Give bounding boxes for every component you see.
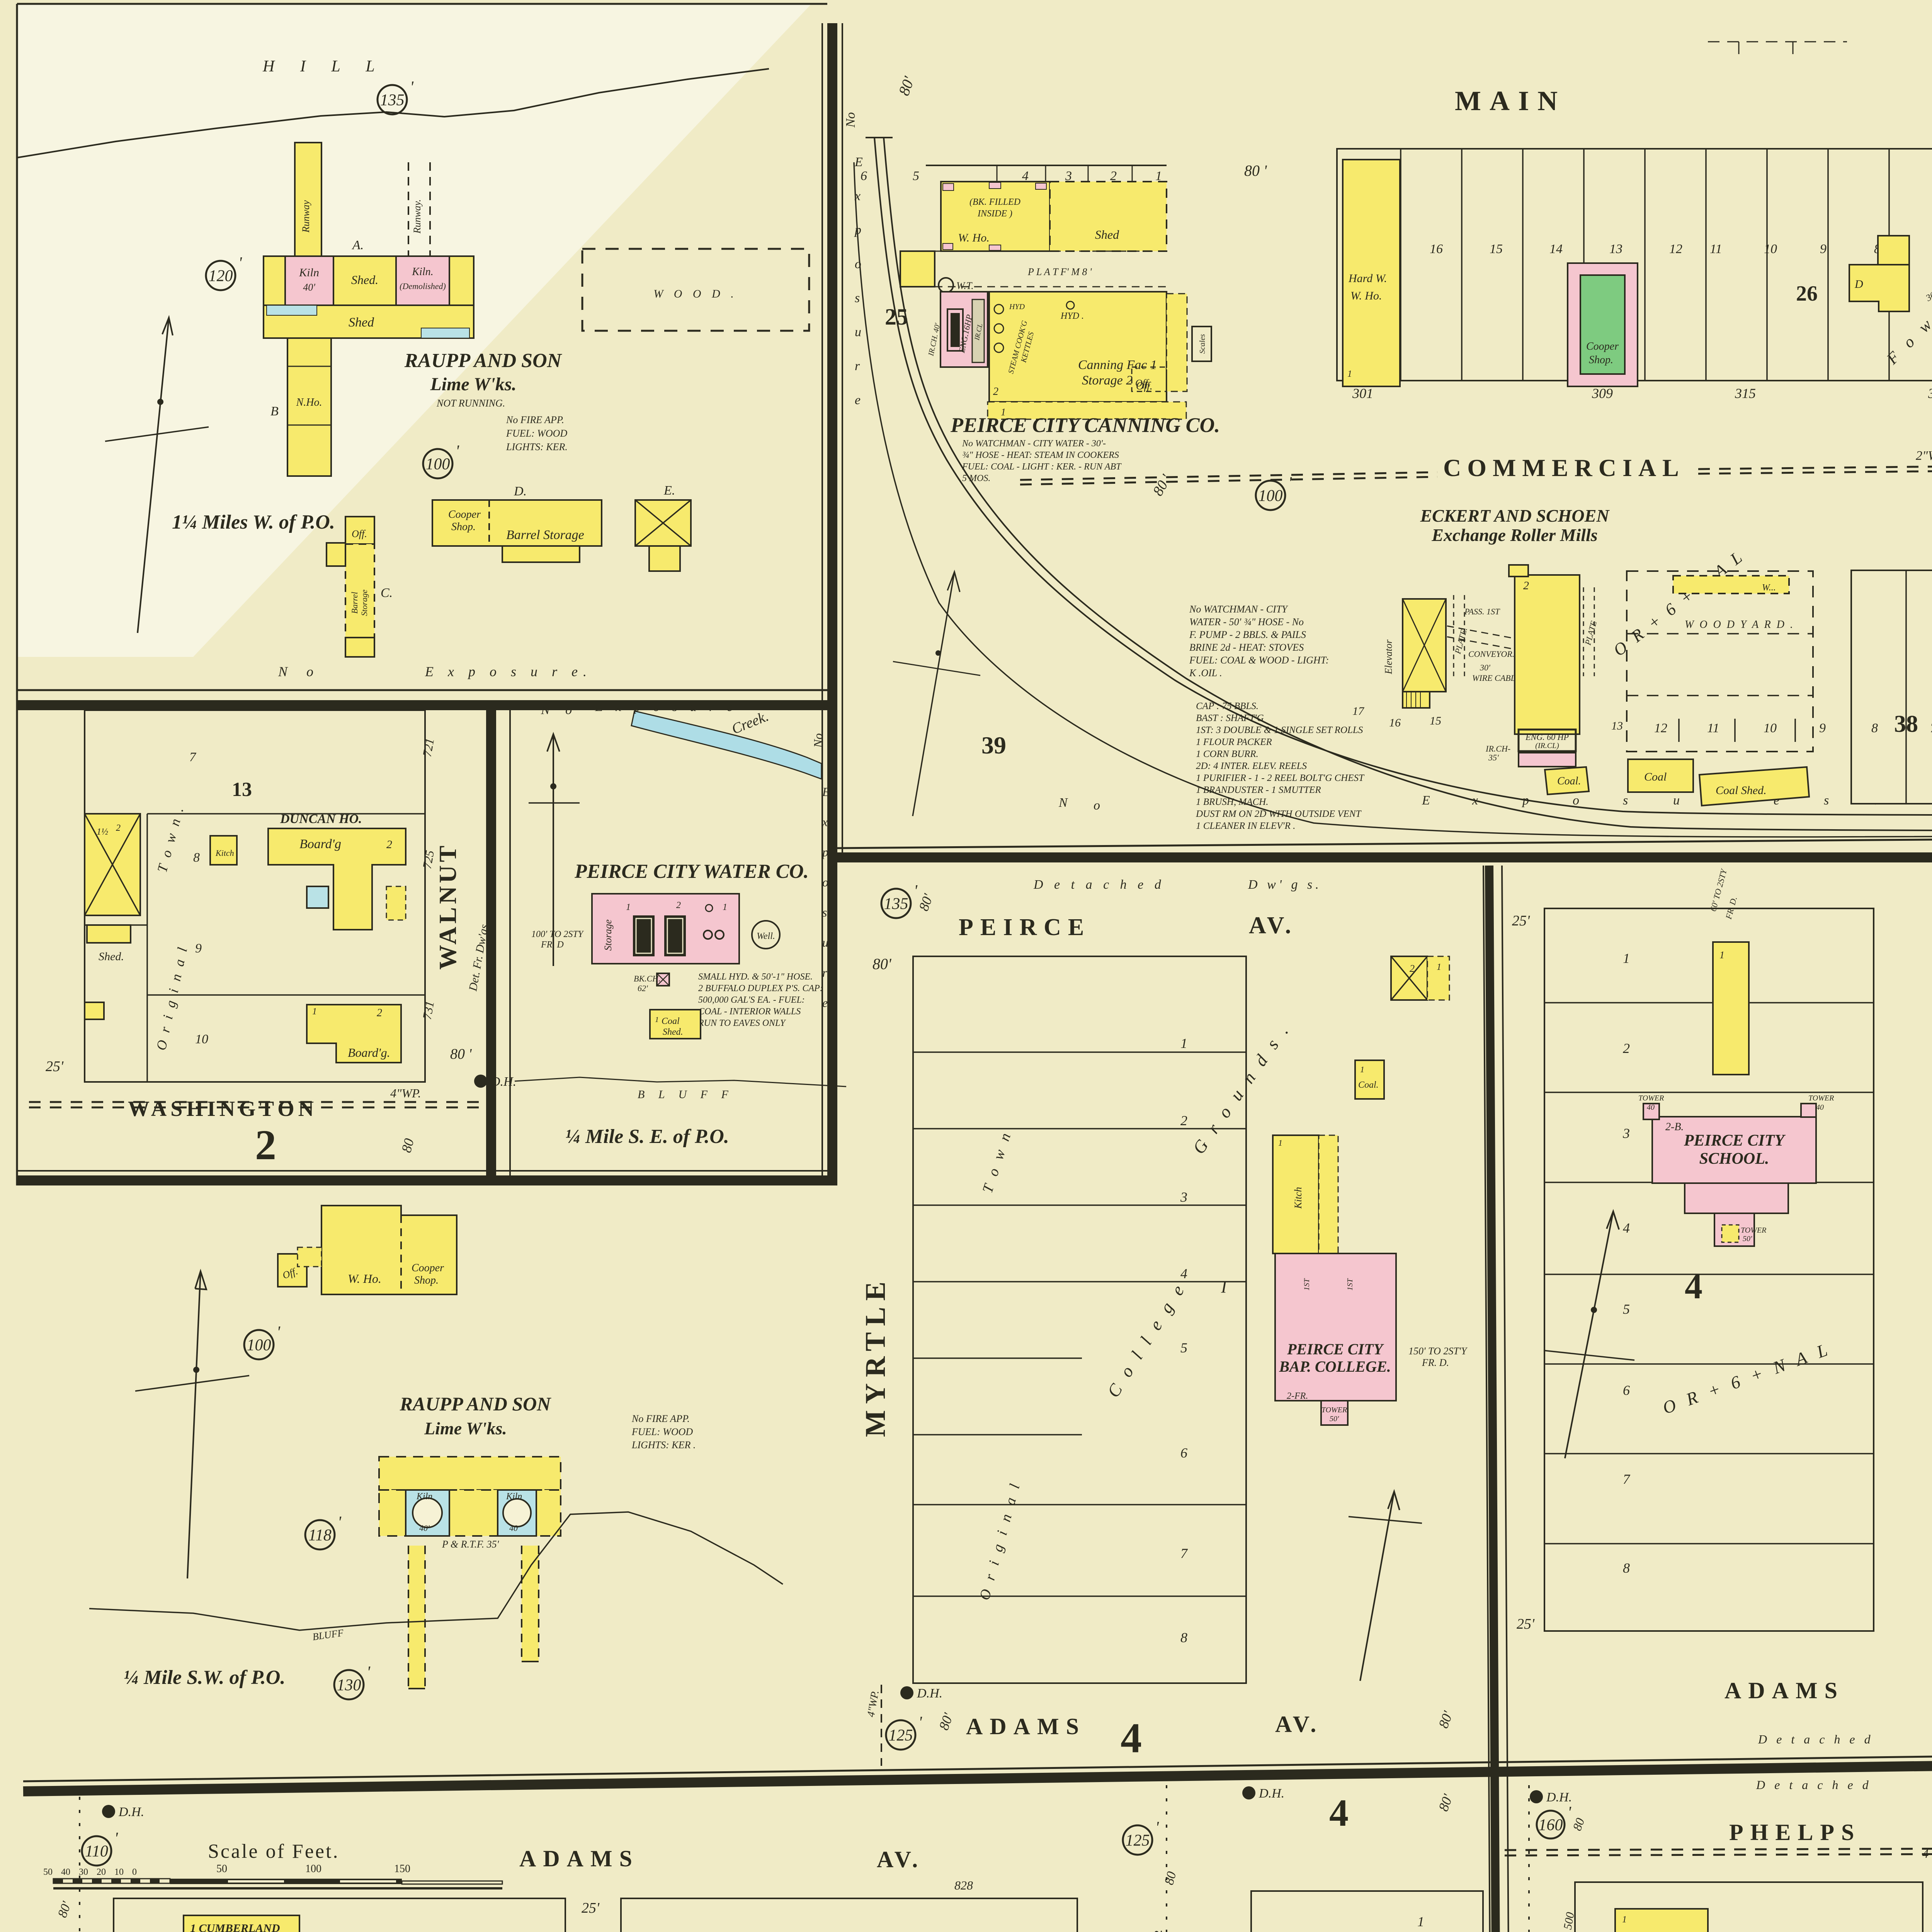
svg-text:D.H.: D.H. bbox=[917, 1686, 942, 1701]
svg-text:C.: C. bbox=[381, 586, 393, 600]
svg-text:2: 2 bbox=[386, 838, 392, 851]
svg-text:4: 4 bbox=[1180, 1266, 1187, 1281]
svg-text:HYD: HYD bbox=[1009, 303, 1025, 311]
svg-text:120: 120 bbox=[209, 267, 233, 285]
svg-text:5: 5 bbox=[1180, 1340, 1187, 1355]
svg-text:W.T.: W.T. bbox=[956, 280, 974, 291]
svg-text:Off.: Off. bbox=[352, 528, 367, 539]
svg-text:50: 50 bbox=[43, 1867, 53, 1877]
svg-text:2-B.: 2-B. bbox=[1665, 1121, 1684, 1133]
svg-text:1½: 1½ bbox=[97, 827, 108, 837]
svg-text:¼ Mile S.W. of P.O.: ¼ Mile S.W. of P.O. bbox=[124, 1667, 285, 1689]
svg-text:309: 309 bbox=[1592, 386, 1613, 401]
svg-text:N o: N o bbox=[541, 703, 578, 717]
svg-text:BAST : SHAFT'G: BAST : SHAFT'G bbox=[1196, 713, 1264, 723]
svg-text:5 MOS.: 5 MOS. bbox=[962, 473, 990, 483]
svg-text:p: p bbox=[821, 845, 828, 859]
svg-text:0: 0 bbox=[132, 1867, 137, 1877]
svg-text:': ' bbox=[410, 78, 414, 96]
svg-text:Cooper: Cooper bbox=[1586, 340, 1619, 352]
svg-text:D.H.: D.H. bbox=[118, 1805, 144, 1819]
svg-text:FR. D: FR. D bbox=[541, 940, 564, 950]
svg-text:¼ Mile S. E. of P.O.: ¼ Mile S. E. of P.O. bbox=[565, 1126, 729, 1148]
svg-text:7: 7 bbox=[1930, 721, 1932, 735]
svg-text:ADAMS: ADAMS bbox=[966, 1714, 1086, 1739]
svg-text:Coal.: Coal. bbox=[1557, 775, 1581, 787]
svg-text:TOWER: TOWER bbox=[1808, 1094, 1834, 1102]
svg-text:E x p o s u r e: E x p o s u r e bbox=[595, 700, 737, 714]
svg-text:1: 1 bbox=[1278, 1138, 1282, 1148]
svg-text:Kiln: Kiln bbox=[416, 1492, 432, 1502]
svg-text:E x p o s u r e.: E x p o s u r e. bbox=[425, 664, 592, 679]
svg-text:Exchange Roller Mills: Exchange Roller Mills bbox=[1431, 525, 1597, 545]
svg-text:E.: E. bbox=[663, 483, 675, 498]
svg-text:E: E bbox=[854, 155, 863, 169]
svg-text:Shed.: Shed. bbox=[99, 950, 124, 963]
svg-text:25': 25' bbox=[582, 1900, 600, 1916]
svg-text:FUEL: COAL & WOOD - LIGHT:: FUEL: COAL & WOOD - LIGHT: bbox=[1189, 655, 1329, 666]
svg-text:W...: W... bbox=[1762, 583, 1776, 593]
svg-text:80': 80' bbox=[872, 955, 892, 973]
svg-text:50': 50' bbox=[1330, 1415, 1339, 1423]
svg-text:Cooper: Cooper bbox=[412, 1262, 444, 1274]
svg-text:RAUPP AND SON: RAUPP AND SON bbox=[404, 350, 563, 372]
svg-text:6: 6 bbox=[861, 169, 867, 183]
svg-text:5: 5 bbox=[913, 169, 919, 183]
svg-text:10: 10 bbox=[1764, 721, 1777, 735]
svg-text:FR. D.: FR. D. bbox=[1422, 1357, 1449, 1368]
svg-text:COMMERCIAL: COMMERCIAL bbox=[1443, 454, 1685, 481]
svg-text:PEIRCE CITY: PEIRCE CITY bbox=[1684, 1132, 1786, 1150]
svg-text:': ' bbox=[238, 254, 242, 272]
svg-text:10: 10 bbox=[195, 1032, 208, 1046]
svg-text:W. Ho.: W. Ho. bbox=[1350, 289, 1382, 302]
svg-text:4: 4 bbox=[1329, 1791, 1349, 1834]
svg-text:8: 8 bbox=[1623, 1560, 1630, 1576]
svg-text:40: 40 bbox=[61, 1867, 70, 1877]
svg-text:CONVEYOR.: CONVEYOR. bbox=[1468, 649, 1514, 659]
svg-text:': ' bbox=[914, 882, 918, 900]
svg-text:Coal: Coal bbox=[1644, 770, 1667, 783]
svg-text:BK.CH.: BK.CH. bbox=[634, 974, 661, 983]
svg-text:4: 4 bbox=[1623, 1220, 1630, 1236]
svg-text:FUEL: COAL - LIGHT : KER. - RU: FUEL: COAL - LIGHT : KER. - RUN ABT bbox=[962, 462, 1122, 472]
svg-text:ECKERT AND SCHOEN: ECKERT AND SCHOEN bbox=[1420, 506, 1610, 526]
svg-text:WATER - 50' ¾" HOSE - No: WATER - 50' ¾" HOSE - No bbox=[1189, 616, 1304, 628]
svg-text:4: 4 bbox=[1685, 1267, 1702, 1306]
svg-text:E: E bbox=[822, 785, 830, 799]
svg-text:26: 26 bbox=[1796, 282, 1818, 306]
svg-text:100: 100 bbox=[247, 1337, 271, 1354]
svg-text:11: 11 bbox=[1707, 721, 1719, 735]
svg-text:5: 5 bbox=[1623, 1301, 1630, 1317]
svg-text:K .OIL .: K .OIL . bbox=[1189, 667, 1222, 679]
svg-text:62': 62' bbox=[638, 983, 648, 993]
svg-text:WIRE CABLE: WIRE CABLE bbox=[1472, 673, 1521, 683]
svg-text:H I L L: H I L L bbox=[262, 58, 386, 75]
svg-text:2: 2 bbox=[676, 900, 681, 910]
svg-text:50': 50' bbox=[1743, 1235, 1752, 1243]
svg-text:Canning Fac 1: Canning Fac 1 bbox=[1078, 358, 1157, 372]
svg-text:Storage: Storage bbox=[359, 590, 369, 616]
svg-text:ENG. 60 HP: ENG. 60 HP bbox=[1525, 732, 1569, 742]
svg-text:2-FR.: 2-FR. bbox=[1287, 1391, 1308, 1401]
svg-text:s: s bbox=[822, 905, 827, 919]
svg-text:.: . bbox=[1874, 793, 1878, 808]
svg-text:': ' bbox=[1155, 1819, 1159, 1837]
svg-text:P L A T F' M 8 ': P L A T F' M 8 ' bbox=[1027, 266, 1092, 277]
svg-text:100: 100 bbox=[1259, 487, 1283, 505]
svg-text:Shop.: Shop. bbox=[1589, 354, 1613, 366]
svg-text:9: 9 bbox=[1820, 242, 1827, 256]
svg-text:10: 10 bbox=[114, 1867, 124, 1877]
svg-text:(Demolished): (Demolished) bbox=[400, 281, 446, 291]
svg-text:160: 160 bbox=[1539, 1816, 1563, 1834]
svg-text:BRINE 2d - HEAT: STOVES: BRINE 2d - HEAT: STOVES bbox=[1189, 642, 1304, 653]
svg-text:2: 2 bbox=[255, 1121, 276, 1168]
svg-text:x: x bbox=[854, 189, 861, 203]
svg-text:No FIRE APP.: No FIRE APP. bbox=[631, 1413, 690, 1424]
svg-text:Kiln: Kiln bbox=[299, 266, 319, 279]
svg-text:TOWER: TOWER bbox=[1638, 1094, 1664, 1102]
svg-text:PEIRCE CITY CANNING CO.: PEIRCE CITY CANNING CO. bbox=[950, 413, 1220, 437]
svg-text:1: 1 bbox=[1622, 1915, 1627, 1925]
svg-text:Lime W'ks.: Lime W'ks. bbox=[430, 374, 516, 395]
svg-text:ADAMS: ADAMS bbox=[1725, 1678, 1844, 1703]
svg-text:No WATCHMAN - CITY: No WATCHMAN - CITY bbox=[1189, 604, 1288, 615]
svg-text:p: p bbox=[1522, 793, 1529, 808]
svg-text:2: 2 bbox=[116, 823, 121, 833]
svg-text:1 PURIFIER - 1 - 2 REEL BOLT'G: 1 PURIFIER - 1 - 2 REEL BOLT'G CHEST bbox=[1196, 773, 1365, 783]
svg-text:8: 8 bbox=[193, 850, 200, 865]
svg-text:': ' bbox=[1288, 474, 1292, 492]
svg-text:50: 50 bbox=[216, 1863, 227, 1875]
svg-text:2: 2 bbox=[1180, 1113, 1187, 1128]
svg-text:': ' bbox=[367, 1663, 371, 1681]
svg-text:Shed.: Shed. bbox=[351, 273, 378, 287]
svg-text:': ' bbox=[277, 1323, 281, 1341]
svg-text:s: s bbox=[1824, 793, 1829, 808]
svg-text:13: 13 bbox=[1609, 242, 1622, 256]
svg-text:1¼ Miles W. of P.O.: 1¼ Miles W. of P.O. bbox=[172, 511, 335, 533]
svg-text:RUN TO EAVES ONLY: RUN TO EAVES ONLY bbox=[698, 1018, 786, 1028]
svg-text:9: 9 bbox=[1819, 721, 1826, 735]
svg-text:Hard W.: Hard W. bbox=[1348, 272, 1387, 285]
svg-text:1: 1 bbox=[1719, 949, 1725, 961]
svg-text:r: r bbox=[855, 359, 860, 373]
svg-text:p: p bbox=[854, 223, 861, 237]
svg-text:1 BRUSH, MACH.: 1 BRUSH, MACH. bbox=[1196, 797, 1268, 807]
svg-text:1: 1 bbox=[1623, 951, 1630, 966]
svg-text:N: N bbox=[1058, 796, 1068, 810]
svg-text:D w' g s.: D w' g s. bbox=[1248, 878, 1322, 892]
svg-text:No WATCHMAN - CITY WATER - 30': No WATCHMAN - CITY WATER - 30'- bbox=[962, 439, 1106, 449]
svg-text:1 BRANDUSTER - 1 SMUTTER: 1 BRANDUSTER - 1 SMUTTER bbox=[1196, 785, 1321, 795]
svg-text:12: 12 bbox=[1669, 242, 1682, 256]
svg-text:500,000 GAL'S EA. - FUEL:: 500,000 GAL'S EA. - FUEL: bbox=[698, 995, 805, 1005]
svg-text:100: 100 bbox=[305, 1863, 321, 1875]
svg-text:110: 110 bbox=[85, 1843, 108, 1861]
svg-text:828: 828 bbox=[954, 1878, 973, 1892]
svg-text:CAP : 75 BBLS.: CAP : 75 BBLS. bbox=[1196, 701, 1259, 711]
svg-text:Shed.: Shed. bbox=[663, 1027, 683, 1037]
svg-text:39: 39 bbox=[981, 731, 1006, 759]
svg-text:25': 25' bbox=[1517, 1616, 1535, 1632]
svg-text:1: 1 bbox=[1417, 1914, 1424, 1929]
svg-text:130: 130 bbox=[337, 1677, 361, 1694]
svg-text:100: 100 bbox=[426, 456, 450, 473]
svg-text:2"WP.: 2"WP. bbox=[1916, 449, 1932, 463]
svg-text:3: 3 bbox=[1622, 1126, 1630, 1141]
svg-text:Off.: Off. bbox=[1136, 380, 1153, 392]
svg-text:Well.: Well. bbox=[757, 931, 775, 941]
svg-text:2: 2 bbox=[1523, 579, 1529, 592]
svg-text:Kitch: Kitch bbox=[215, 848, 234, 858]
svg-text:17: 17 bbox=[1352, 705, 1365, 718]
svg-text:8: 8 bbox=[1180, 1630, 1187, 1645]
svg-text:14: 14 bbox=[1549, 242, 1563, 256]
svg-text:s: s bbox=[855, 291, 860, 305]
svg-text:o: o bbox=[855, 257, 861, 271]
svg-text:MYRTLE: MYRTLE bbox=[860, 1276, 891, 1437]
svg-text:Coal: Coal bbox=[662, 1016, 680, 1026]
svg-text:40': 40' bbox=[303, 282, 315, 293]
svg-text:15: 15 bbox=[1430, 714, 1441, 727]
svg-text:118: 118 bbox=[308, 1527, 332, 1544]
svg-text:PEIRCE CITY: PEIRCE CITY bbox=[1287, 1340, 1384, 1358]
svg-text:125: 125 bbox=[889, 1727, 913, 1745]
svg-text:40: 40 bbox=[1647, 1103, 1655, 1112]
svg-text:HYD .: HYD . bbox=[1060, 311, 1084, 321]
svg-text:40: 40 bbox=[509, 1523, 518, 1533]
svg-text:COAL - INTERIOR WALLS: COAL - INTERIOR WALLS bbox=[698, 1007, 801, 1017]
svg-text:1: 1 bbox=[1360, 1065, 1364, 1074]
svg-text:W. Ho.: W. Ho. bbox=[958, 231, 989, 244]
svg-text:LIGHTS: KER.: LIGHTS: KER. bbox=[506, 441, 568, 452]
svg-text:¾" HOSE - HEAT: STEAM IN COOKE: ¾" HOSE - HEAT: STEAM IN COOKERS bbox=[962, 450, 1119, 460]
svg-text:No: No bbox=[811, 733, 825, 748]
svg-text:80 ': 80 ' bbox=[1244, 162, 1267, 179]
svg-text:D e t a c h e d: D e t a c h e d bbox=[1758, 1732, 1874, 1746]
svg-text:1 FLOUR PACKER: 1 FLOUR PACKER bbox=[1196, 737, 1272, 747]
svg-text:SCHOOL.: SCHOOL. bbox=[1699, 1150, 1769, 1168]
svg-text:LIGHTS: KER .: LIGHTS: KER . bbox=[631, 1439, 696, 1451]
svg-text:P & R.T.F. 35': P & R.T.F. 35' bbox=[442, 1539, 499, 1550]
svg-text:1 CUMBERLAND: 1 CUMBERLAND bbox=[190, 1922, 280, 1932]
svg-text:u: u bbox=[1673, 793, 1680, 808]
svg-text:IR.CH-: IR.CH- bbox=[1485, 744, 1510, 753]
svg-text:16: 16 bbox=[1389, 716, 1401, 729]
svg-text:I: I bbox=[1221, 1277, 1228, 1296]
svg-text:D e t a c h e d: D e t a c h e d bbox=[1756, 1778, 1872, 1792]
svg-text:Shed: Shed bbox=[349, 315, 374, 330]
svg-text:2 BUFFALO DUPLEX P'S. CAP:: 2 BUFFALO DUPLEX P'S. CAP: bbox=[698, 983, 823, 993]
svg-text:150' TO 2ST'Y: 150' TO 2ST'Y bbox=[1408, 1345, 1468, 1357]
svg-text:2: 2 bbox=[377, 1007, 382, 1019]
svg-text:13: 13 bbox=[232, 779, 252, 801]
svg-text:Elevator: Elevator bbox=[1383, 639, 1394, 674]
svg-text:(IR.CL): (IR.CL) bbox=[1535, 742, 1559, 750]
svg-text:N.Ho.: N.Ho. bbox=[296, 396, 322, 408]
svg-text:u: u bbox=[822, 935, 828, 949]
svg-text:Board'g: Board'g bbox=[299, 837, 341, 851]
svg-text:o: o bbox=[822, 875, 828, 889]
svg-text:3: 3 bbox=[1180, 1189, 1187, 1205]
svg-text:319: 319 bbox=[1928, 386, 1932, 401]
svg-text:7: 7 bbox=[189, 750, 197, 764]
svg-text:A.: A. bbox=[352, 238, 364, 252]
svg-text:6: 6 bbox=[1180, 1445, 1187, 1461]
svg-text:W O O D .: W O O D . bbox=[653, 287, 738, 300]
svg-text:x: x bbox=[822, 815, 828, 829]
svg-text:100' TO 2STY: 100' TO 2STY bbox=[531, 929, 584, 939]
svg-text:30': 30' bbox=[1480, 663, 1490, 672]
svg-text:NOT RUNNING.: NOT RUNNING. bbox=[436, 398, 505, 409]
svg-text:o: o bbox=[1573, 793, 1579, 808]
svg-text:No FIRE APP.: No FIRE APP. bbox=[506, 414, 564, 425]
svg-text:25': 25' bbox=[1512, 913, 1530, 929]
svg-text:N o: N o bbox=[278, 664, 321, 679]
svg-text:12: 12 bbox=[1654, 721, 1667, 735]
svg-text:o: o bbox=[1094, 798, 1100, 813]
svg-text:B: B bbox=[270, 404, 279, 418]
svg-text:Scales: Scales bbox=[1198, 334, 1207, 354]
svg-text:D.H.: D.H. bbox=[1546, 1790, 1572, 1804]
svg-text:Runway: Runway bbox=[300, 200, 311, 233]
svg-text:2D: 4 INTER. ELEV. REELS: 2D: 4 INTER. ELEV. REELS bbox=[1196, 761, 1307, 771]
svg-text:BAP. COLLEGE.: BAP. COLLEGE. bbox=[1279, 1358, 1391, 1375]
svg-text:RAUPP AND SON: RAUPP AND SON bbox=[400, 1393, 552, 1415]
svg-text:WASHINGTON: WASHINGTON bbox=[128, 1097, 318, 1121]
svg-text:Storage: Storage bbox=[602, 920, 614, 951]
svg-text:16: 16 bbox=[1430, 242, 1443, 256]
svg-text:2: 2 bbox=[1623, 1041, 1630, 1056]
svg-text:r: r bbox=[822, 966, 827, 980]
svg-text:DUST RM ON 2D WITH OUTSIDE VEN: DUST RM ON 2D WITH OUTSIDE VENT bbox=[1196, 809, 1362, 819]
svg-text:1: 1 bbox=[1180, 1036, 1187, 1051]
svg-text:40: 40 bbox=[1816, 1103, 1824, 1112]
svg-text:': ' bbox=[1568, 1804, 1571, 1821]
svg-text:Shed: Shed bbox=[1095, 228, 1119, 241]
svg-text:25': 25' bbox=[46, 1058, 64, 1075]
svg-text:': ' bbox=[456, 442, 459, 460]
svg-text:1: 1 bbox=[655, 1015, 659, 1024]
svg-text:1 CORN BURR.: 1 CORN BURR. bbox=[1196, 749, 1259, 759]
svg-text:Scale of Feet.: Scale of Feet. bbox=[208, 1840, 339, 1862]
svg-text:4: 4 bbox=[1121, 1714, 1142, 1762]
svg-text:FUEL: WOOD: FUEL: WOOD bbox=[506, 428, 567, 439]
svg-text:No: No bbox=[844, 112, 858, 128]
svg-text:Kitch: Kitch bbox=[1293, 1187, 1304, 1209]
svg-text:x: x bbox=[1472, 793, 1478, 808]
svg-text:PEIRCE CITY WATER CO.: PEIRCE CITY WATER CO. bbox=[574, 861, 809, 883]
svg-text:F. PUMP - 2 BBLS. & PAILS: F. PUMP - 2 BBLS. & PAILS bbox=[1189, 629, 1306, 640]
svg-text:4"WP.: 4"WP. bbox=[390, 1086, 421, 1100]
svg-text:35': 35' bbox=[1488, 753, 1499, 762]
svg-text:13: 13 bbox=[1611, 719, 1623, 732]
svg-text:1: 1 bbox=[626, 902, 631, 912]
svg-text:TOWER: TOWER bbox=[1741, 1226, 1766, 1235]
svg-text:D.H.: D.H. bbox=[1259, 1786, 1284, 1801]
svg-text:SMALL HYD. & 50'-1" HOSE.: SMALL HYD. & 50'-1" HOSE. bbox=[698, 972, 813, 982]
svg-text:15: 15 bbox=[1490, 242, 1503, 256]
svg-text:9: 9 bbox=[195, 941, 202, 956]
svg-text:Barrel Storage: Barrel Storage bbox=[506, 528, 584, 542]
svg-text:301: 301 bbox=[1352, 386, 1373, 401]
svg-text:D.H.: D.H. bbox=[490, 1075, 516, 1089]
svg-text:Coal Shed.: Coal Shed. bbox=[1716, 784, 1767, 797]
svg-text:1: 1 bbox=[1437, 962, 1441, 972]
svg-text:7: 7 bbox=[1180, 1546, 1188, 1561]
svg-text:B L U F F: B L U F F bbox=[638, 1088, 734, 1101]
svg-text:Storage 2: Storage 2 bbox=[1082, 373, 1133, 388]
svg-text:Kiln: Kiln bbox=[506, 1492, 522, 1502]
svg-text:E: E bbox=[1422, 793, 1430, 808]
svg-text:': ' bbox=[338, 1514, 342, 1531]
svg-text:135: 135 bbox=[380, 92, 405, 109]
svg-text:8: 8 bbox=[1871, 721, 1878, 735]
svg-text:FUEL: WOOD: FUEL: WOOD bbox=[631, 1426, 693, 1437]
svg-text:AV.: AV. bbox=[877, 1847, 922, 1872]
svg-text:Cooper: Cooper bbox=[448, 509, 481, 520]
svg-text:': ' bbox=[114, 1830, 118, 1847]
svg-text:s: s bbox=[1623, 793, 1628, 808]
svg-text:Shop.: Shop. bbox=[414, 1274, 439, 1286]
svg-text:INSIDE ): INSIDE ) bbox=[977, 209, 1012, 219]
svg-text:TOWER: TOWER bbox=[1321, 1406, 1347, 1414]
svg-text:PEIRCE: PEIRCE bbox=[959, 914, 1091, 940]
svg-text:e: e bbox=[855, 393, 861, 407]
svg-text:AV.: AV. bbox=[1249, 912, 1295, 939]
svg-text:D.: D. bbox=[514, 484, 527, 498]
svg-text:38: 38 bbox=[1894, 711, 1918, 737]
svg-text:Runway.: Runway. bbox=[412, 199, 423, 234]
svg-text:ADAMS: ADAMS bbox=[519, 1846, 639, 1871]
svg-text:DUNCAN HO.: DUNCAN HO. bbox=[280, 812, 362, 826]
svg-text:20: 20 bbox=[97, 1867, 106, 1877]
svg-text:1: 1 bbox=[1347, 369, 1352, 379]
svg-text:AV.: AV. bbox=[1275, 1711, 1320, 1737]
svg-text:1ST: 1ST bbox=[1303, 1278, 1311, 1291]
svg-text:Kiln.: Kiln. bbox=[412, 266, 433, 278]
svg-text:315: 315 bbox=[1735, 386, 1756, 401]
svg-text:MAIN: MAIN bbox=[1455, 85, 1566, 116]
svg-text:1ST: 3 DOUBLE & 1 SINGLE SET R: 1ST: 3 DOUBLE & 1 SINGLE SET ROLLS bbox=[1196, 725, 1363, 735]
svg-text:10: 10 bbox=[1764, 242, 1777, 256]
svg-text:': ' bbox=[918, 1714, 922, 1731]
svg-text:u: u bbox=[855, 325, 861, 339]
svg-text:1: 1 bbox=[723, 902, 727, 912]
svg-text:40': 40' bbox=[419, 1523, 430, 1533]
svg-text:80 ': 80 ' bbox=[450, 1046, 472, 1062]
svg-text:W. Ho.: W. Ho. bbox=[348, 1272, 381, 1286]
svg-text:D: D bbox=[1854, 278, 1863, 291]
svg-text:Coal.: Coal. bbox=[1358, 1080, 1379, 1090]
svg-text:Shop.: Shop. bbox=[451, 521, 476, 533]
svg-text:7: 7 bbox=[1623, 1471, 1631, 1487]
svg-text:2: 2 bbox=[1410, 963, 1415, 974]
svg-text:PHELPS: PHELPS bbox=[1729, 1820, 1861, 1845]
svg-text:PASS. 1ST: PASS. 1ST bbox=[1464, 607, 1500, 616]
svg-text:6: 6 bbox=[1623, 1383, 1630, 1398]
svg-text:25: 25 bbox=[885, 304, 908, 330]
svg-text:150: 150 bbox=[394, 1863, 410, 1875]
svg-text:(BK. FILLED: (BK. FILLED bbox=[969, 197, 1020, 207]
svg-text:W O O D Y A R D .: W O O D Y A R D . bbox=[1685, 619, 1794, 631]
svg-text:2: 2 bbox=[993, 386, 998, 398]
svg-text:Lime W'ks.: Lime W'ks. bbox=[424, 1418, 507, 1438]
svg-text:WALNUT: WALNUT bbox=[434, 843, 461, 970]
